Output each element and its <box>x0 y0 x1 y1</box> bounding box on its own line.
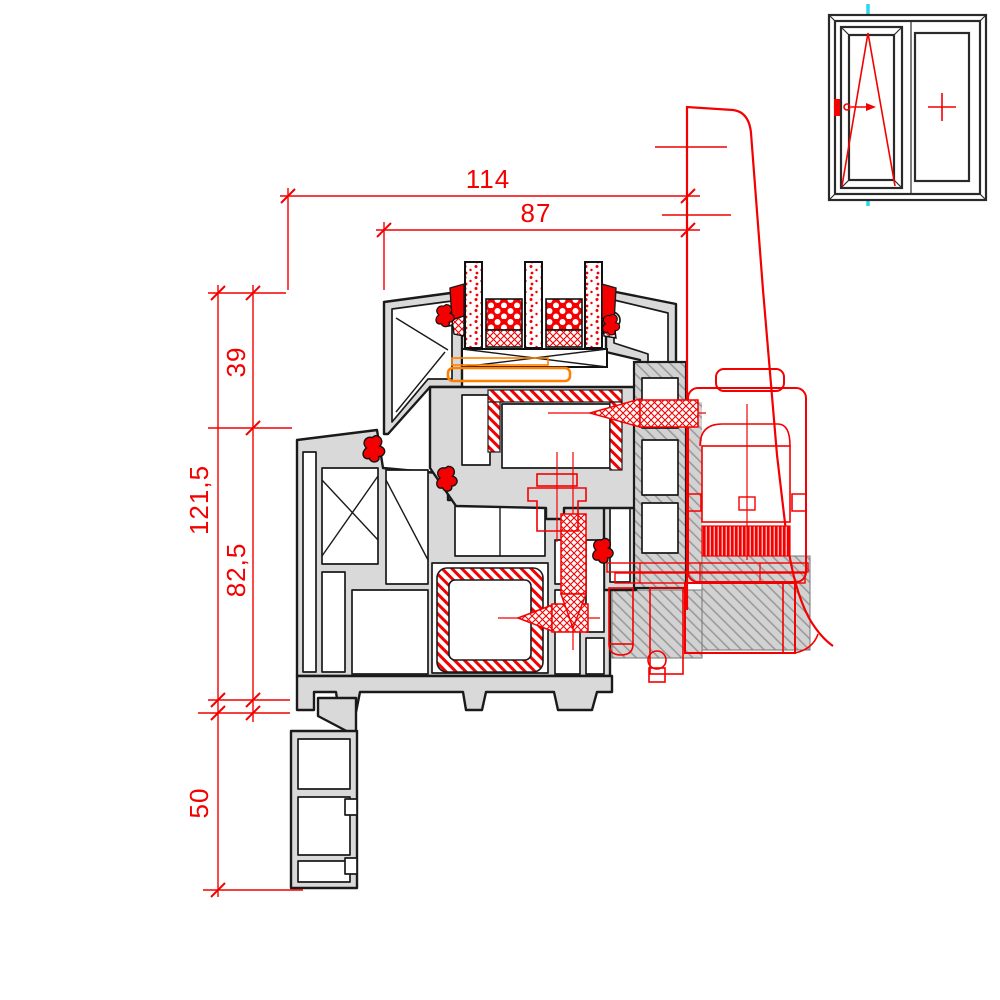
dimension-width-87 <box>376 147 731 290</box>
glass-pane <box>465 262 482 348</box>
frame-chamber <box>586 638 604 674</box>
column-chamber <box>642 440 678 495</box>
spacer-bar <box>546 299 582 330</box>
window-type-icon <box>829 4 986 206</box>
frame-chamber <box>386 470 428 584</box>
screw-shank-icon <box>561 514 586 594</box>
extension-notch <box>345 858 357 874</box>
handle-icon <box>834 99 840 116</box>
sill-extension-profile <box>291 698 357 888</box>
glazing-unit <box>448 262 616 381</box>
dimension-label-87: 87 <box>521 198 552 228</box>
spacer-bar <box>486 299 522 330</box>
glass-pane <box>585 262 602 348</box>
sash-chamber <box>462 395 490 465</box>
extension-chamber <box>298 861 350 882</box>
column-chamber <box>642 503 678 553</box>
frame-chamber <box>352 590 428 674</box>
frame-chamber <box>303 452 316 672</box>
dimension-label-50: 50 <box>184 788 214 819</box>
outer-wall-column <box>634 362 686 588</box>
wall-hatch <box>612 590 702 658</box>
extension-chamber <box>298 797 350 855</box>
sill-mushroom-stem <box>649 668 665 682</box>
dimension-label-39: 39 <box>221 347 251 378</box>
screw-shank-icon <box>640 400 698 427</box>
dimension-label-121-5: 121,5 <box>184 465 214 535</box>
spacer-sealant <box>486 330 522 347</box>
steel-reinforcement-sash <box>488 402 500 452</box>
extension-notch <box>345 799 357 815</box>
extension-chamber <box>298 739 350 789</box>
technical-drawing-page: 114 87 39 121,5 8 <box>0 0 1000 1000</box>
spacer-sealant <box>546 330 582 347</box>
frame-chamber <box>322 572 345 672</box>
glass-pane <box>525 262 542 348</box>
frame-chamber <box>610 508 630 582</box>
dimension-width-114 <box>280 188 700 290</box>
dimension-label-114: 114 <box>466 164 510 194</box>
steel-reinforcement-sash <box>488 390 622 402</box>
wall-hatch <box>702 556 810 650</box>
dimension-label-82-5: 82,5 <box>221 543 251 598</box>
window-section-drawing: 114 87 39 121,5 8 <box>0 0 1000 1000</box>
brush-seal <box>702 526 790 556</box>
steel-reinforcement-hollow <box>449 580 531 660</box>
glazing-bridge <box>448 368 570 381</box>
